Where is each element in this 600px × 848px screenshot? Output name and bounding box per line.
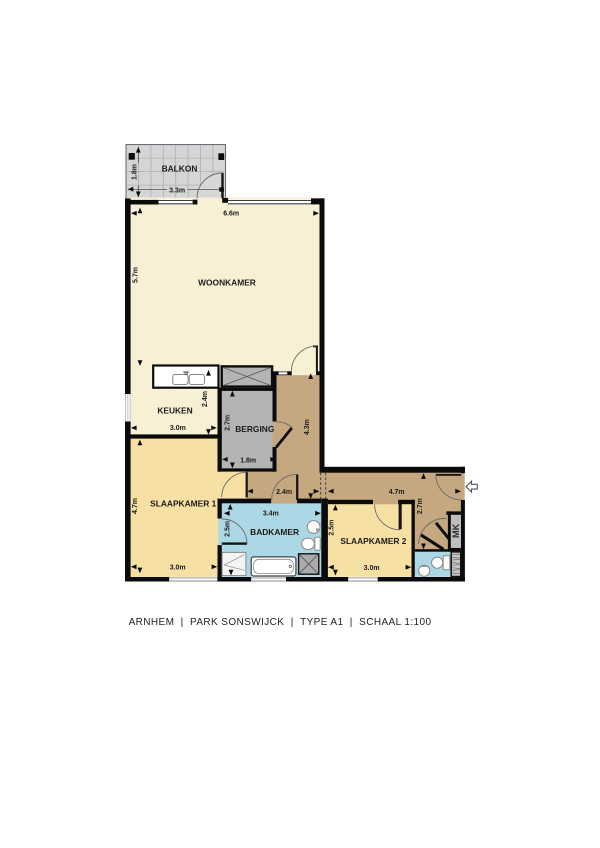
svg-text:MK: MK bbox=[451, 523, 461, 538]
svg-text:3.0m: 3.0m bbox=[170, 565, 186, 572]
svg-text:1.8m: 1.8m bbox=[240, 457, 256, 464]
svg-text:3.3m: 3.3m bbox=[169, 187, 185, 194]
svg-text:4.7m: 4.7m bbox=[132, 498, 139, 514]
svg-text:2.7m: 2.7m bbox=[417, 498, 424, 514]
svg-text:3.0m: 3.0m bbox=[364, 565, 380, 572]
svg-text:6.6m: 6.6m bbox=[223, 210, 239, 217]
svg-text:KEUKEN: KEUKEN bbox=[157, 406, 192, 416]
svg-text:4.7m: 4.7m bbox=[389, 489, 405, 496]
svg-text:2.4m: 2.4m bbox=[202, 391, 209, 407]
svg-text:2.5m: 2.5m bbox=[224, 521, 231, 537]
svg-text:2.4m: 2.4m bbox=[276, 489, 292, 496]
svg-text:BERGING: BERGING bbox=[235, 424, 274, 434]
svg-text:2.7m: 2.7m bbox=[225, 415, 232, 431]
svg-text:1.8m: 1.8m bbox=[131, 164, 138, 180]
svg-text:4.3m: 4.3m bbox=[304, 419, 311, 435]
svg-text:5.7m: 5.7m bbox=[133, 267, 140, 283]
svg-text:2.5m: 2.5m bbox=[328, 520, 335, 536]
svg-text:BADKAMER: BADKAMER bbox=[250, 527, 299, 537]
svg-text:SLAAPKAMER 2: SLAAPKAMER 2 bbox=[340, 536, 406, 546]
svg-text:BALKON: BALKON bbox=[162, 164, 198, 174]
svg-text:3.0m: 3.0m bbox=[170, 425, 186, 432]
svg-text:3.4m: 3.4m bbox=[263, 511, 279, 518]
svg-text:SLAAPKAMER 1: SLAAPKAMER 1 bbox=[150, 498, 216, 508]
svg-text:WOONKAMER: WOONKAMER bbox=[198, 278, 256, 288]
svg-text:ARNHEM | PARK SONSWIJCK |: ARNHEM | PARK SONSWIJCK | TYPE A1 | SCHA… bbox=[129, 617, 432, 628]
